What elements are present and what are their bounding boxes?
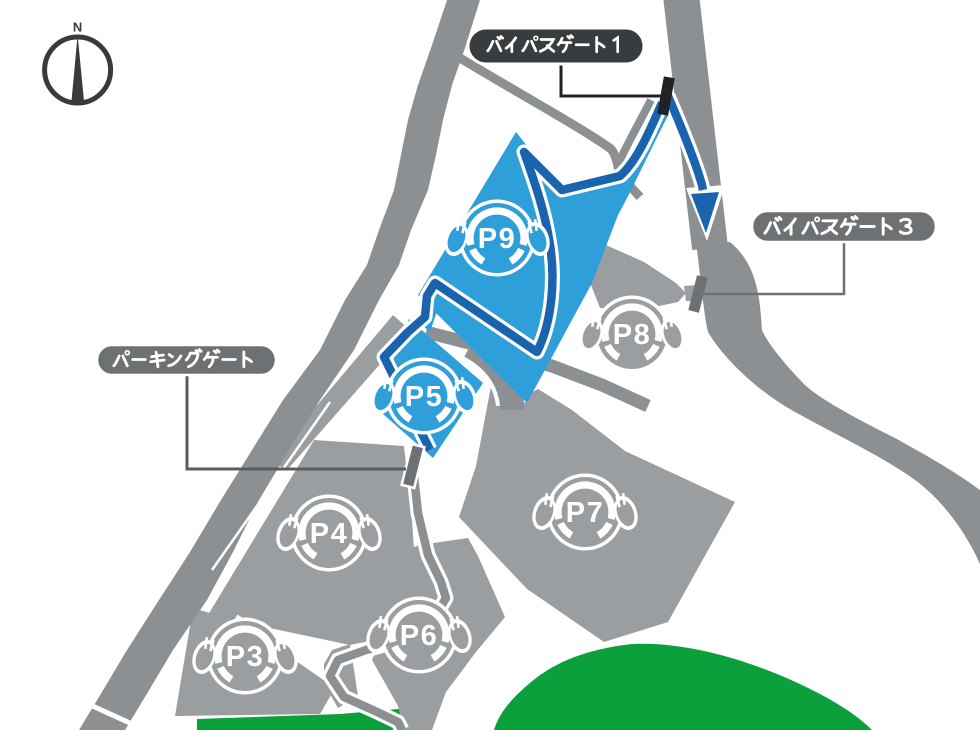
svg-text:P6: P6 (400, 620, 438, 652)
svg-text:N: N (73, 20, 82, 35)
svg-text:P9: P9 (478, 223, 516, 255)
svg-text:P3: P3 (226, 641, 264, 673)
svg-text:P4: P4 (310, 518, 348, 550)
svg-text:P8: P8 (613, 319, 651, 351)
svg-text:P5: P5 (405, 381, 443, 413)
svg-text:P7: P7 (566, 497, 604, 529)
